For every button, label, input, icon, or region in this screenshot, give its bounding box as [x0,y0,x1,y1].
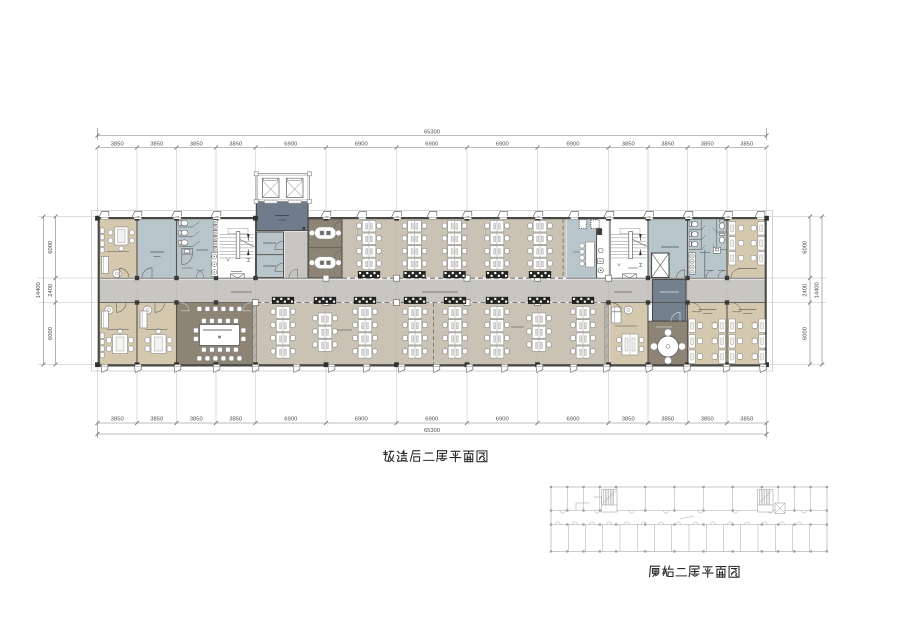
svg-text:3850: 3850 [111,417,124,423]
svg-text:6000: 6000 [48,241,54,254]
svg-text:3850: 3850 [622,142,635,148]
svg-text:6900: 6900 [425,142,438,148]
svg-text:2400: 2400 [803,284,809,297]
svg-text:3850: 3850 [661,417,674,423]
svg-text:3850: 3850 [229,142,242,148]
svg-text:6000: 6000 [803,327,809,340]
svg-text:6000: 6000 [803,241,809,254]
svg-text:65300: 65300 [424,130,440,136]
svg-text:3850: 3850 [701,417,714,423]
svg-text:6900: 6900 [355,142,368,148]
svg-text:6900: 6900 [425,417,438,423]
svg-text:3850: 3850 [150,142,163,148]
svg-text:6900: 6900 [496,142,509,148]
svg-text:3850: 3850 [150,417,163,423]
svg-text:6900: 6900 [567,417,580,423]
svg-text:3850: 3850 [111,142,124,148]
svg-text:14400: 14400 [36,282,42,298]
svg-text:6000: 6000 [48,327,54,340]
svg-text:3850: 3850 [740,417,753,423]
svg-text:65300: 65300 [424,428,440,434]
svg-text:3850: 3850 [701,142,714,148]
svg-text:3850: 3850 [622,417,635,423]
svg-text:6900: 6900 [496,417,509,423]
svg-text:6900: 6900 [284,142,297,148]
svg-text:6900: 6900 [284,417,297,423]
svg-text:3850: 3850 [190,417,203,423]
svg-text:3850: 3850 [190,142,203,148]
svg-text:3850: 3850 [229,417,242,423]
svg-text:6900: 6900 [355,417,368,423]
svg-text:2400: 2400 [48,284,54,297]
svg-text:6900: 6900 [567,142,580,148]
svg-text:3850: 3850 [661,142,674,148]
svg-text:14400: 14400 [815,282,821,298]
svg-text:3850: 3850 [740,142,753,148]
